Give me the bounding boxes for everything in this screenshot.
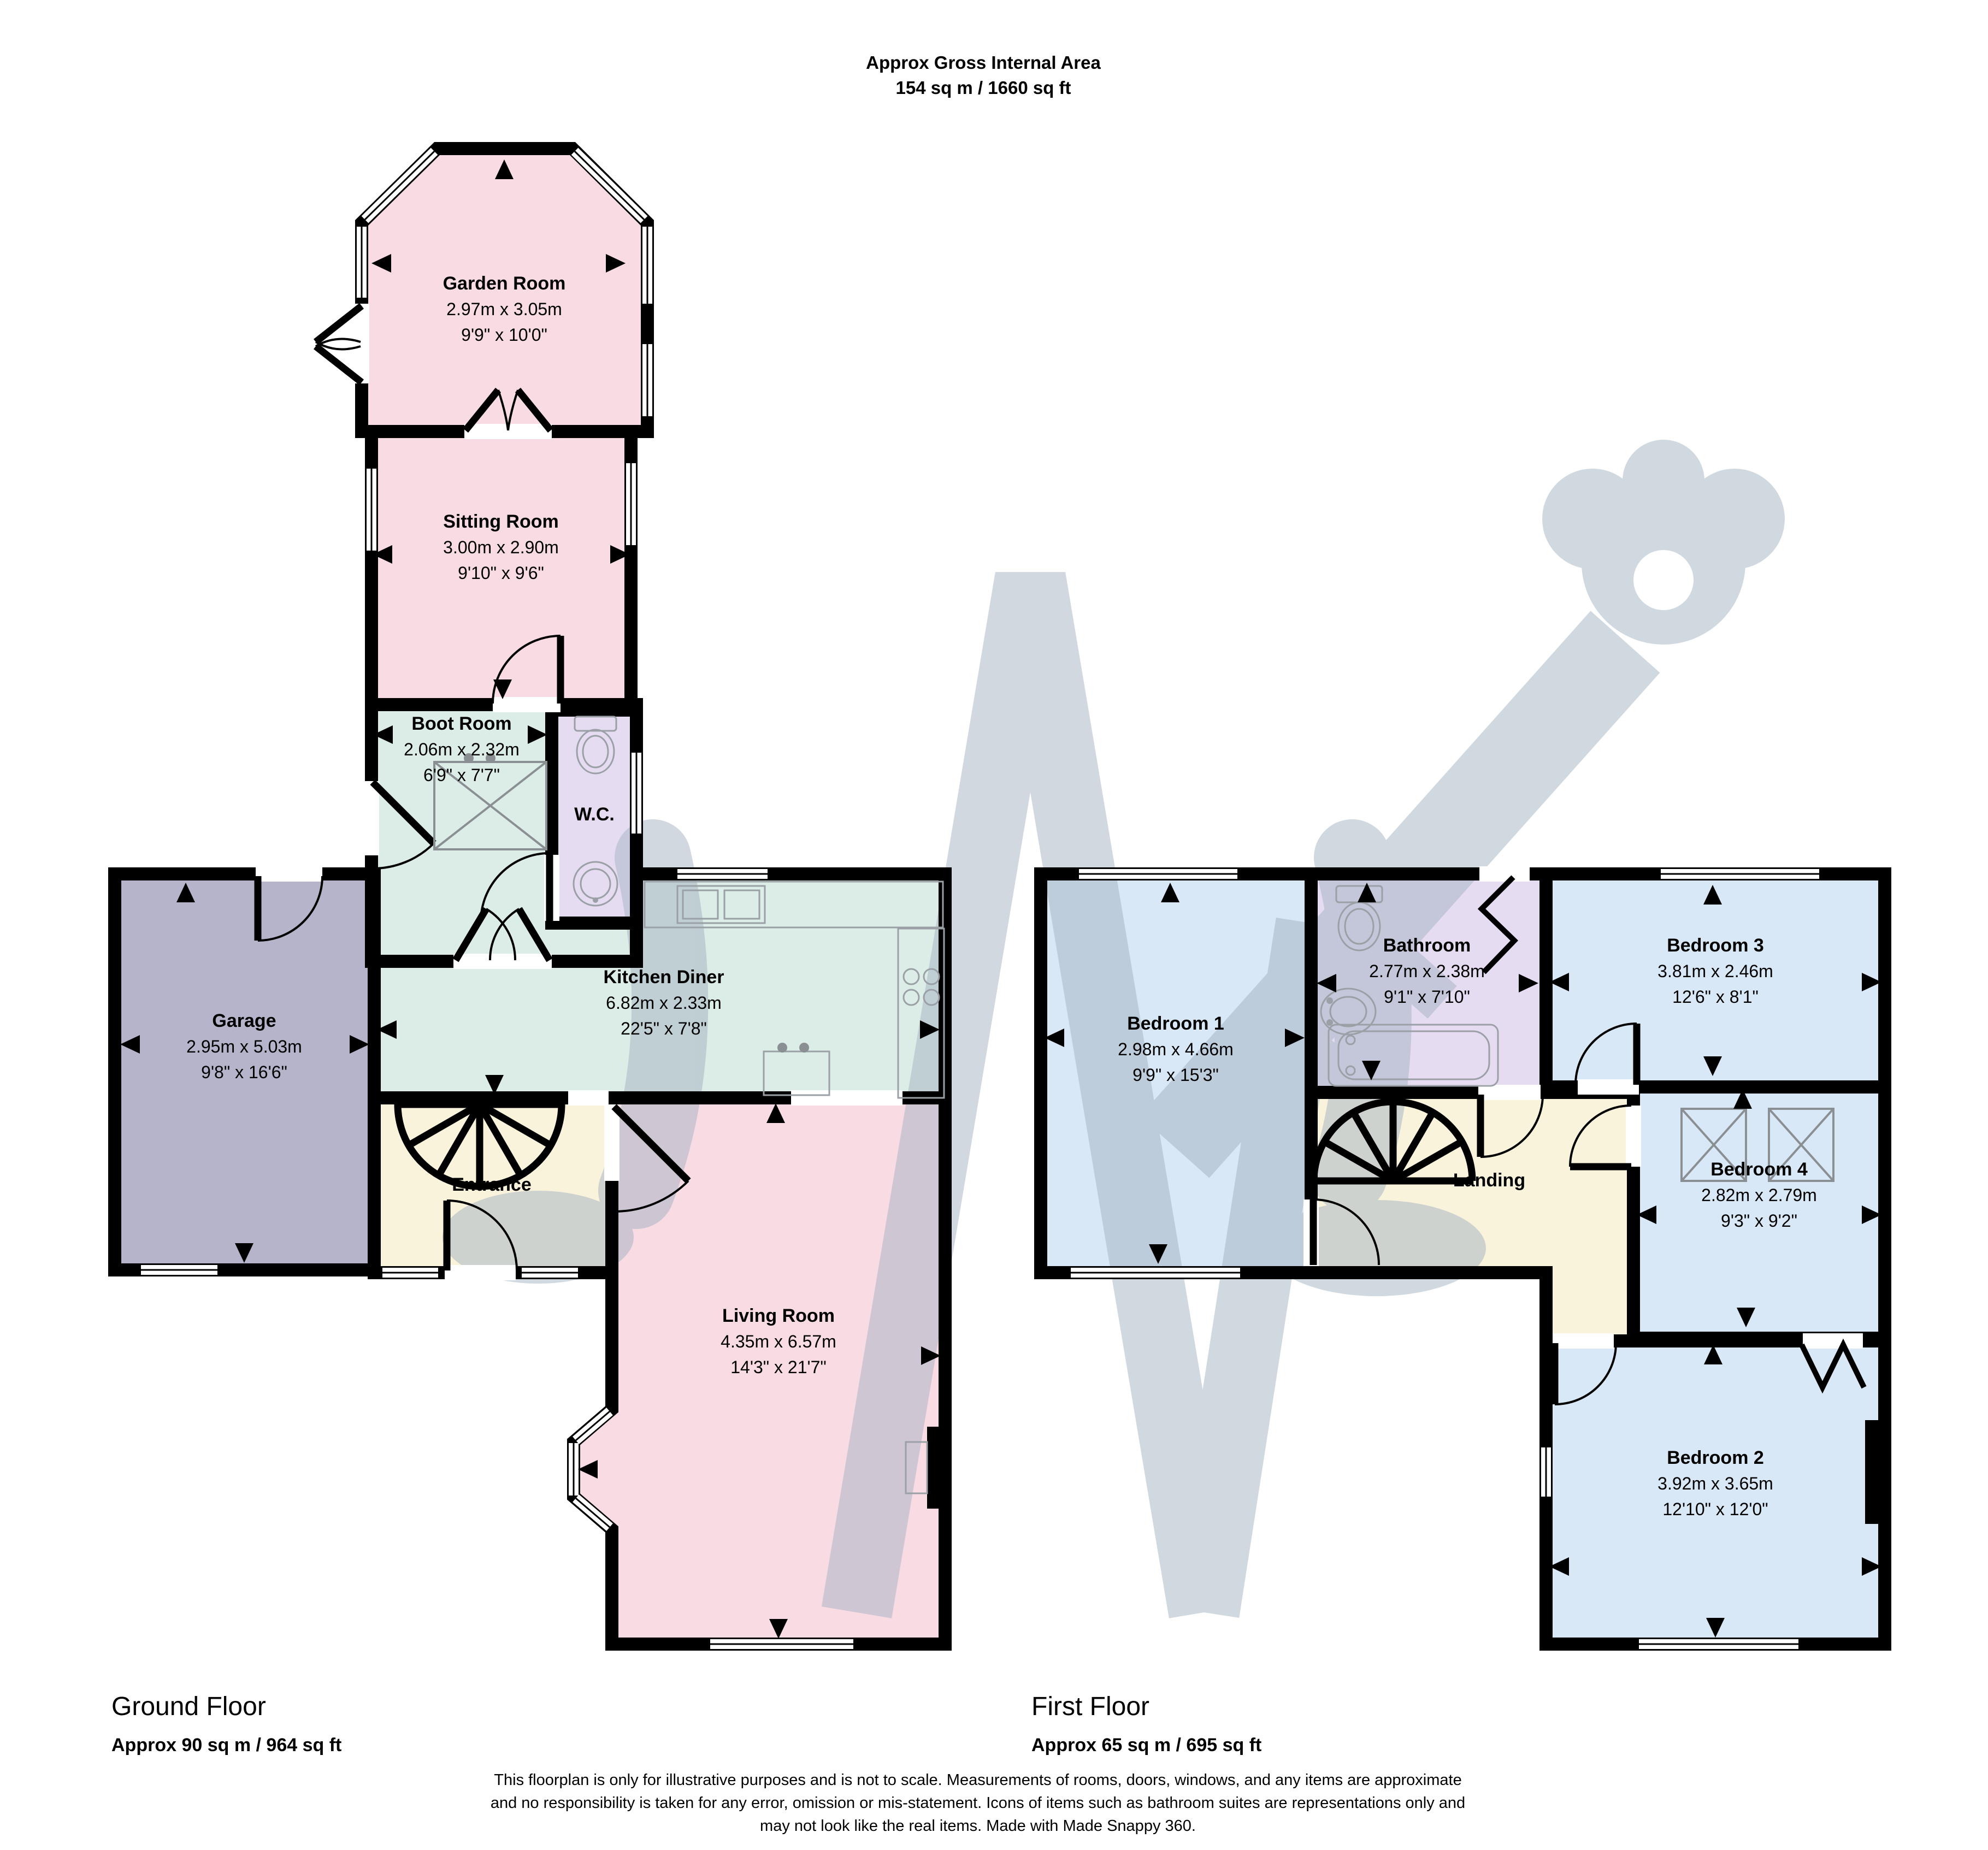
sitting-room-label: Sitting Room [443, 511, 559, 532]
landing-label: Landing [1453, 1170, 1525, 1191]
wc-label: W.C. [574, 804, 615, 825]
bedroom-3-imperial: 12'6" x 8'1" [1672, 987, 1759, 1007]
entrance-label: Entrance [452, 1174, 532, 1195]
boot-room-metric: 2.06m x 2.32m [404, 740, 520, 759]
ground-floor-label: Ground Floor [111, 1692, 266, 1721]
disclaimer-line-1: This floorplan is only for illustrative … [494, 1771, 1461, 1789]
bedroom-3-metric: 3.81m x 2.46m [1657, 961, 1773, 981]
disclaimer-line-3: may not look like the real items. Made w… [760, 1817, 1196, 1835]
chimney-breast [1865, 1420, 1886, 1524]
page-title: Approx Gross Internal Area [866, 52, 1101, 73]
bathroom-imperial: 9'1" x 7'10" [1384, 987, 1470, 1007]
page-title-area: 154 sq m / 1660 sq ft [896, 78, 1071, 98]
bedroom-2-imperial: 12'10" x 12'0" [1662, 1499, 1768, 1519]
bedroom-2-label: Bedroom 2 [1667, 1447, 1764, 1468]
kitchen-diner-imperial: 22'5" x 7'8" [621, 1019, 707, 1038]
garden-room-label: Garden Room [443, 273, 566, 294]
floorplan-page: Approx Gross Internal Area 154 sq m / 16… [0, 0, 1988, 1850]
bedroom-3-label: Bedroom 3 [1667, 935, 1764, 956]
bedroom-1-imperial: 9'9" x 15'3" [1132, 1065, 1219, 1085]
bathroom-label: Bathroom [1383, 935, 1471, 956]
garden-room-metric: 2.97m x 3.05m [446, 299, 562, 319]
boot-room-imperial: 6'9" x 7'7" [423, 765, 500, 785]
disclaimer-line-2: and no responsibility is taken for any e… [491, 1794, 1465, 1812]
kitchen-diner-metric: 6.82m x 2.33m [606, 993, 722, 1013]
living-room-metric: 4.35m x 6.57m [721, 1332, 836, 1351]
sitting-room-metric: 3.00m x 2.90m [443, 537, 559, 557]
bedroom-4-label: Bedroom 4 [1710, 1159, 1808, 1180]
first-floor-area: Approx 65 sq m / 695 sq ft [1031, 1735, 1261, 1756]
bedroom-1-label: Bedroom 1 [1127, 1013, 1224, 1034]
living-room-label: Living Room [722, 1305, 835, 1326]
garage-imperial: 9'8" x 16'6" [201, 1062, 287, 1082]
garage-metric: 2.95m x 5.03m [186, 1037, 302, 1056]
ground-floor-area: Approx 90 sq m / 964 sq ft [111, 1735, 341, 1756]
boot-room-label: Boot Room [411, 713, 511, 734]
garden-room-imperial: 9'9" x 10'0" [461, 325, 547, 345]
kitchen-diner-label: Kitchen Diner [603, 967, 724, 988]
garage-label: Garage [212, 1010, 276, 1031]
floorplan-canvas: Approx Gross Internal Area 154 sq m / 16… [0, 0, 1988, 1850]
sitting-room-imperial: 9'10" x 9'6" [458, 563, 544, 583]
bedroom-1-metric: 2.98m x 4.66m [1118, 1039, 1234, 1059]
bedroom-4-metric: 2.82m x 2.79m [1701, 1185, 1817, 1205]
bathroom-metric: 2.77m x 2.38m [1369, 961, 1485, 981]
bedroom-2-metric: 3.92m x 3.65m [1657, 1474, 1773, 1493]
living-room-imperial: 14'3" x 21'7" [730, 1357, 827, 1377]
first-floor-label: First Floor [1031, 1692, 1149, 1721]
bedroom-4-imperial: 9'3" x 9'2" [1721, 1211, 1797, 1231]
